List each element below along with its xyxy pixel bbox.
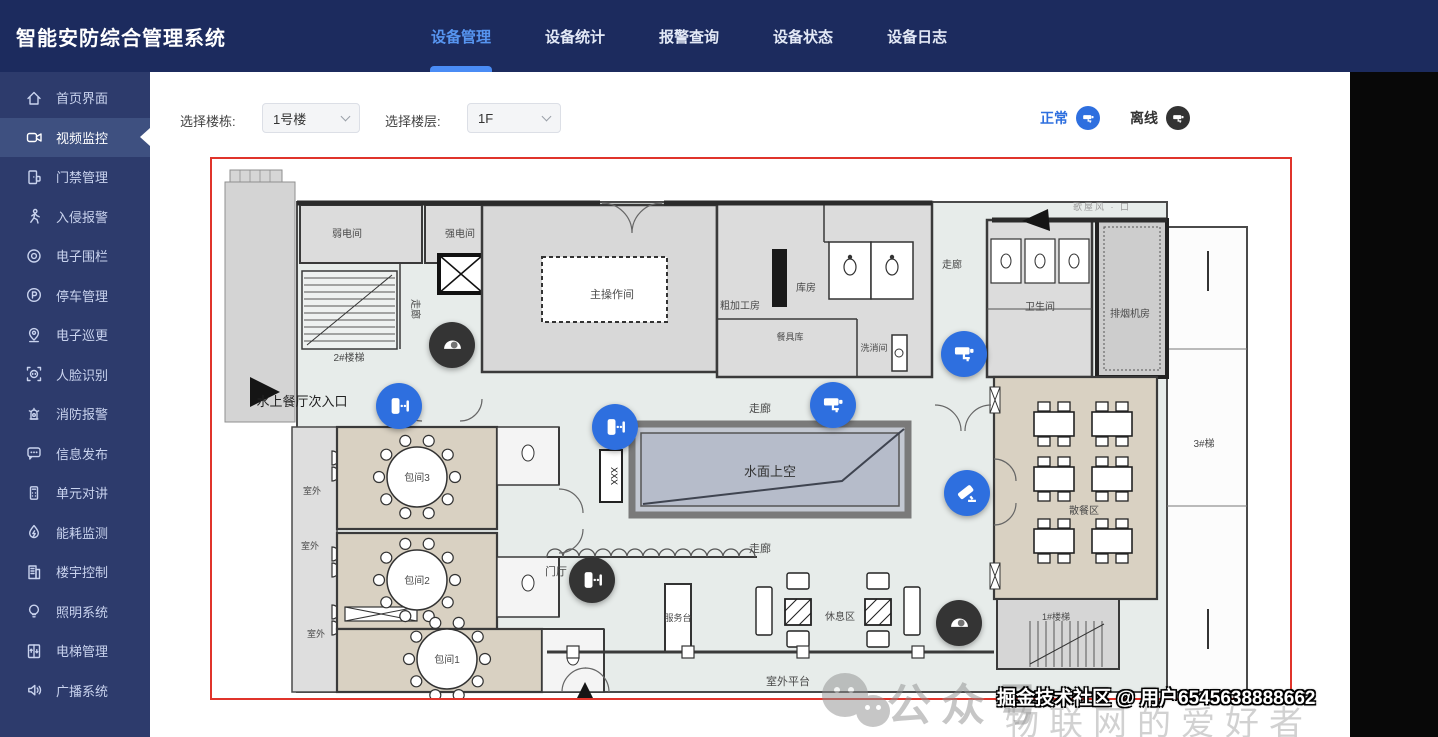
device-dome-camera-1[interactable] [429,322,475,368]
dining-area [990,377,1157,599]
room-label: 餐具库 [776,331,803,342]
device-bullet-camera-3[interactable] [569,557,615,603]
sidebar-item-label: 首页界面 [56,88,108,107]
building-control-icon [25,563,43,581]
device-bullet-camera-2[interactable] [592,404,638,450]
sidebar-item-label: 能耗监测 [56,523,108,542]
main-tabs: 设备管理 设备统计 报警查询 设备状态 设备日志 [404,0,974,72]
floor-select[interactable]: 1F [467,103,561,133]
entrance-label: 水上餐厅次入口 [256,394,347,409]
room-label: 走廊 [749,541,771,555]
room-label: 室外 [303,485,321,496]
sidebar-item-label: 门禁管理 [56,167,108,186]
room-label: 粗加工房 [720,299,760,312]
room-label: 弱电间 [332,227,362,240]
room-label: 3#梯 [1193,437,1214,450]
offline-camera-icon [1166,106,1190,130]
filter-bar: 选择楼栋: 1号楼 选择楼层: 1F 正常 离线 [150,72,1350,145]
sidebar-item-face-recognition[interactable]: 人脸识别 [0,355,150,395]
tab-device-statistics[interactable]: 设备统计 [518,0,632,72]
room-label: 包间2 [404,574,430,587]
room-label: 室外平台 [766,674,810,688]
broadcast-icon [25,681,43,699]
sidebar-item-label: 人脸识别 [56,365,108,384]
sidebar-item-label: 电子围栏 [56,246,108,265]
tab-alarm-query[interactable]: 报警查询 [632,0,746,72]
watermark-subscription: 物联网的爱好者 [1005,696,1313,737]
room-label: 1#楼梯 [1042,611,1070,622]
legend-normal-label: 正常 [1040,108,1068,128]
tab-device-management[interactable]: 设备管理 [404,0,518,72]
sidebar-item-elevator[interactable]: 电梯管理 [0,631,150,671]
building-select-label: 选择楼栋: [180,111,236,130]
room-label: 强电间 [445,227,475,240]
sidebar-item-label: 单元对讲 [56,483,108,502]
plan-annotation: 歌屋风 · 口 [1073,201,1131,212]
chevron-down-icon [341,112,351,122]
device-box-camera-2[interactable] [941,331,987,377]
sidebar-item-home[interactable]: 首页界面 [0,78,150,118]
smoke-exhaust-room [1097,220,1167,377]
sidebar-item-electronic-fence[interactable]: 电子围栏 [0,236,150,276]
sidebar-item-intercom[interactable]: 单元对讲 [0,473,150,513]
sidebar-item-video-monitor[interactable]: 视频监控 [0,118,150,158]
face-recognition-icon [25,365,43,383]
tab-device-status[interactable]: 设备状态 [746,0,860,72]
sidebar: 首页界面 视频监控 门禁管理 入侵报警 电子围栏 停车管理 [0,72,150,737]
floorplan-drawing: 弱电间 强电间 2#楼梯 走廊 主操作间 粗加工房 库房 餐具库 洗消间 走廊 … [212,159,1290,698]
device-dome-camera-2[interactable] [936,600,982,646]
sidebar-item-broadcast[interactable]: 广播系统 [0,671,150,711]
floor-select-value: 1F [478,111,493,126]
lighting-icon [25,602,43,620]
patrol-icon [25,326,43,344]
room-label: 洗消间 [860,342,887,353]
building-select[interactable]: 1号楼 [262,103,360,133]
elevator-icon [25,642,43,660]
normal-camera-icon [1076,106,1100,130]
sidebar-item-intrusion-alarm[interactable]: 入侵报警 [0,197,150,237]
room-label: 室外 [307,628,325,639]
page-title: 智能安防综合管理系统 [16,0,226,72]
intrusion-alarm-icon [25,207,43,225]
device-ptz-camera-1[interactable] [944,470,990,516]
legend-normal: 正常 [1040,106,1100,130]
room-label: 卫生间 [1025,300,1055,313]
sidebar-item-label: 信息发布 [56,444,108,463]
floorplan-panel: 弱电间 强电间 2#楼梯 走廊 主操作间 粗加工房 库房 餐具库 洗消间 走廊 … [210,157,1292,700]
device-bullet-camera-1[interactable] [376,383,422,429]
room-label: 门厅 [545,564,567,578]
stairs-1 [997,599,1119,669]
equipment-label: XXX [609,467,619,485]
sidebar-item-label: 照明系统 [56,602,108,621]
room-label: 散餐区 [1069,504,1099,517]
sidebar-item-label: 电子巡更 [56,325,108,344]
fire-alarm-icon [25,405,43,423]
room-label: 2#楼梯 [333,351,364,364]
video-monitor-icon [25,128,43,146]
room-label: 主操作间 [590,287,634,301]
parking-icon [25,286,43,304]
room-label: 走廊 [409,299,422,319]
tab-device-log[interactable]: 设备日志 [860,0,974,72]
pool-label: 水面上空 [744,464,796,479]
room-label: 室外 [301,540,319,551]
room-label: 库房 [796,281,816,294]
room-label: 排烟机房 [1110,307,1150,320]
sidebar-menu: 首页界面 视频监控 门禁管理 入侵报警 电子围栏 停车管理 [0,72,150,710]
info-publish-icon [25,444,43,462]
sidebar-item-label: 广播系统 [56,681,108,700]
sidebar-item-info-publish[interactable]: 信息发布 [0,434,150,474]
main-content: 选择楼栋: 1号楼 选择楼层: 1F 正常 离线 [150,72,1350,737]
sidebar-item-label: 停车管理 [56,286,108,305]
sidebar-item-label: 视频监控 [56,128,108,147]
sidebar-item-parking[interactable]: 停车管理 [0,276,150,316]
home-icon [25,89,43,107]
floor-select-label: 选择楼层: [385,111,441,130]
sidebar-item-building-control[interactable]: 楼宇控制 [0,552,150,592]
access-control-icon [25,168,43,186]
legend-offline: 离线 [1130,106,1190,130]
room-label: 服务台 [664,612,691,623]
sidebar-item-access-control[interactable]: 门禁管理 [0,157,150,197]
energy-monitor-icon [25,523,43,541]
building-select-value: 1号楼 [273,109,306,128]
kitchen-block [717,202,932,377]
stairs-2 [302,271,397,349]
sidebar-item-label: 电梯管理 [56,641,108,660]
screen-letterbox [1350,72,1438,737]
room-label: 走廊 [749,401,771,415]
chevron-down-icon [542,112,552,122]
electronic-fence-icon [25,247,43,265]
sidebar-item-patrol[interactable]: 电子巡更 [0,315,150,355]
restroom-block [987,220,1092,377]
device-box-camera-1[interactable] [810,382,856,428]
sidebar-item-label: 消防报警 [56,404,108,423]
room-label: 休息区 [825,610,855,623]
room-label: 走廊 [942,258,962,271]
sidebar-item-fire-alarm[interactable]: 消防报警 [0,394,150,434]
intercom-icon [25,484,43,502]
app-window: 智能安防综合管理系统 设备管理 设备统计 报警查询 设备状态 设备日志 首页界面… [0,0,1438,737]
sidebar-item-label: 楼宇控制 [56,562,108,581]
right-wing [1167,227,1247,692]
room-label: 包间1 [434,653,460,666]
top-header: 智能安防综合管理系统 设备管理 设备统计 报警查询 设备状态 设备日志 [0,0,1438,72]
sidebar-item-label: 入侵报警 [56,207,108,226]
sidebar-item-energy-monitor[interactable]: 能耗监测 [0,513,150,553]
legend-offline-label: 离线 [1130,108,1158,128]
room-label: 包间3 [404,471,430,484]
sidebar-item-lighting[interactable]: 照明系统 [0,592,150,632]
